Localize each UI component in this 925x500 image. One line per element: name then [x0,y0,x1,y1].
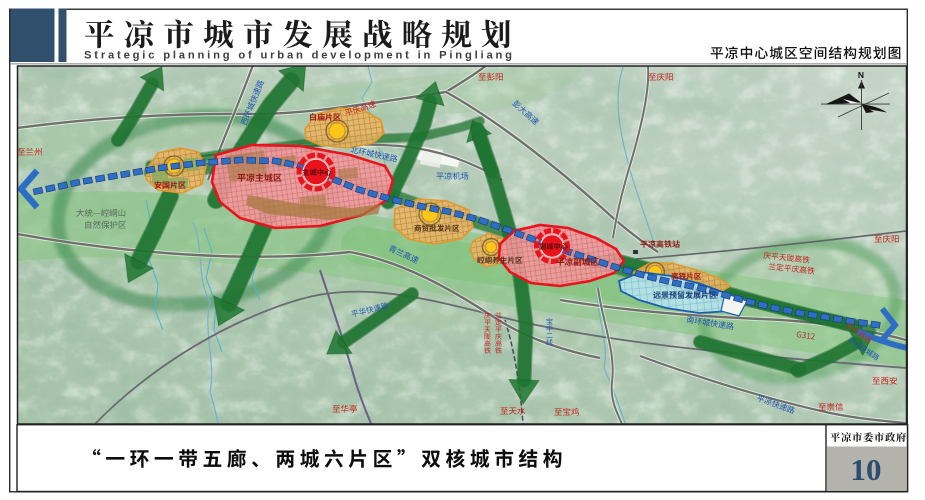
svg-text:10: 10 [851,452,882,487]
svg-text:N: N [858,70,864,80]
